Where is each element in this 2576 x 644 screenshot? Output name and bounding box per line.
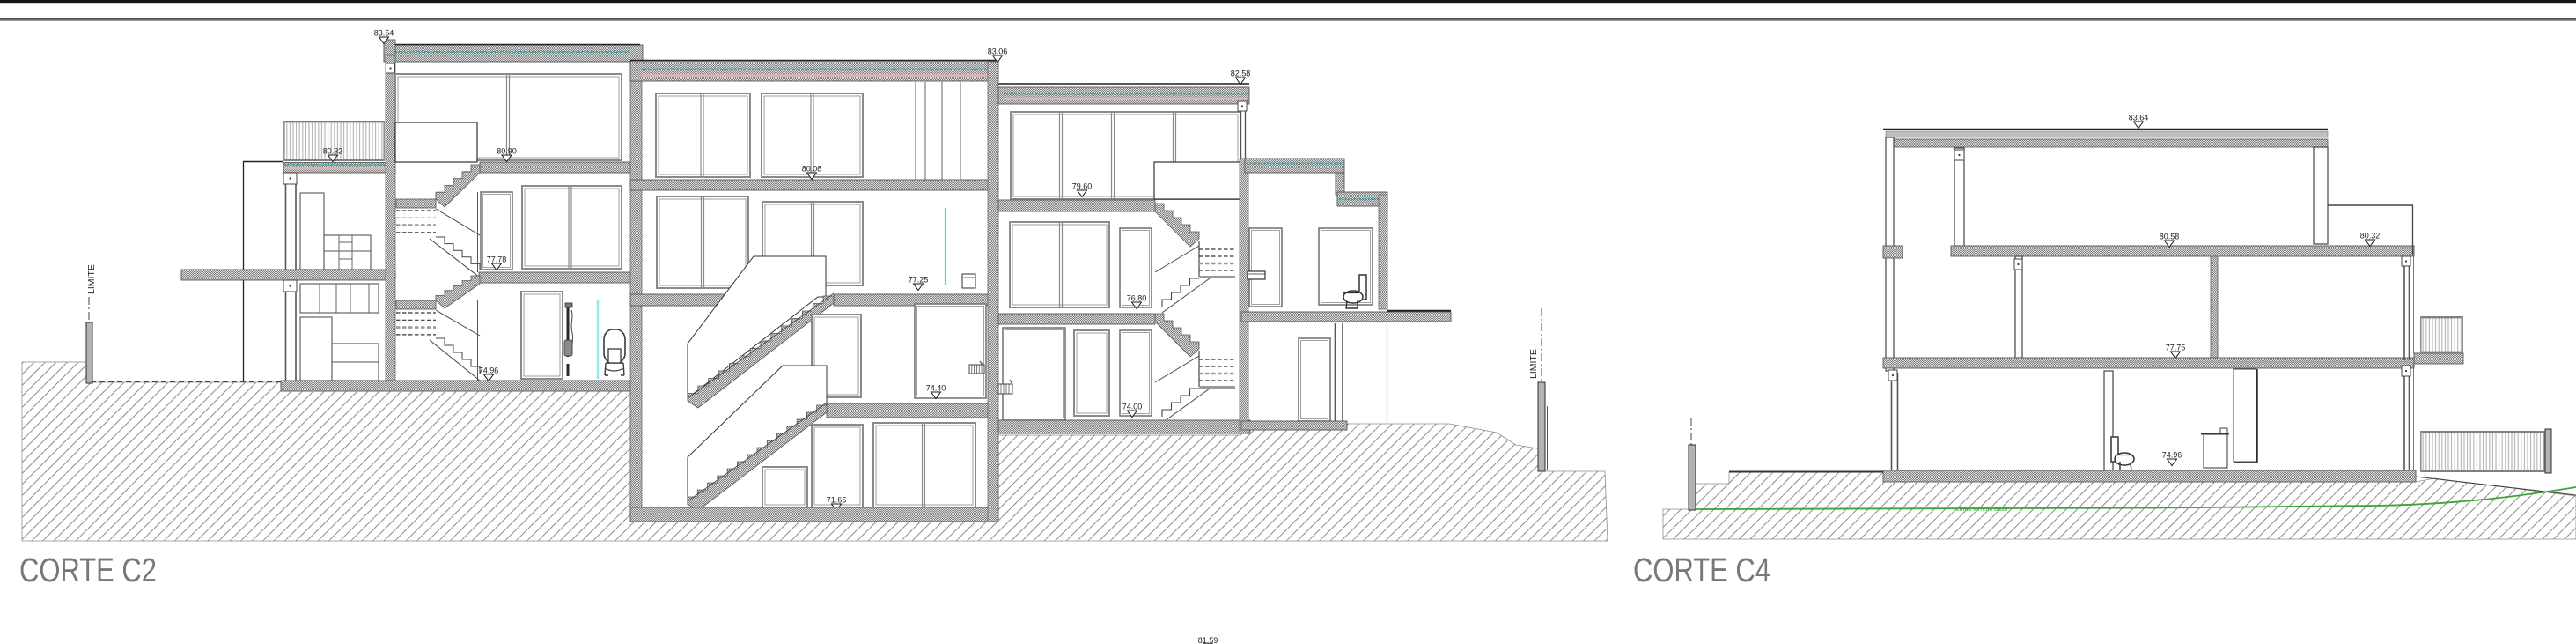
svg-text:Linha terreno atual: Linha terreno atual (1956, 507, 2008, 513)
svg-text:77.75: 77.75 (2166, 344, 2186, 352)
svg-text:CORTE C4: CORTE C4 (1633, 552, 1770, 589)
svg-text:74.96: 74.96 (2162, 451, 2182, 460)
svg-text:80.32: 80.32 (2360, 232, 2381, 241)
svg-text:80.08: 80.08 (802, 165, 822, 174)
svg-text:LIMITE: LIMITE (86, 264, 97, 294)
svg-text:83.54: 83.54 (374, 29, 394, 38)
svg-text:81.59: 81.59 (1198, 636, 1218, 644)
svg-text:CORTE C2: CORTE C2 (19, 552, 157, 589)
svg-text:71.65: 71.65 (827, 496, 847, 505)
svg-text:76.80: 76.80 (1127, 294, 1147, 303)
svg-text:80.32: 80.32 (323, 147, 343, 156)
svg-text:82.58: 82.58 (1231, 70, 1251, 78)
svg-text:74.96: 74.96 (479, 366, 499, 375)
svg-text:80.58: 80.58 (2160, 233, 2180, 241)
svg-text:77.25: 77.25 (909, 276, 929, 285)
svg-text:74.40: 74.40 (926, 384, 946, 393)
svg-text:77.78: 77.78 (487, 255, 507, 264)
svg-text:74.00: 74.00 (1122, 403, 1143, 411)
svg-text:80.90: 80.90 (497, 147, 517, 156)
svg-text:83.64: 83.64 (2129, 114, 2149, 122)
svg-text:83.06: 83.06 (988, 48, 1008, 56)
svg-text:LIMITE: LIMITE (1528, 349, 1539, 379)
svg-text:79.60: 79.60 (1072, 182, 1093, 191)
